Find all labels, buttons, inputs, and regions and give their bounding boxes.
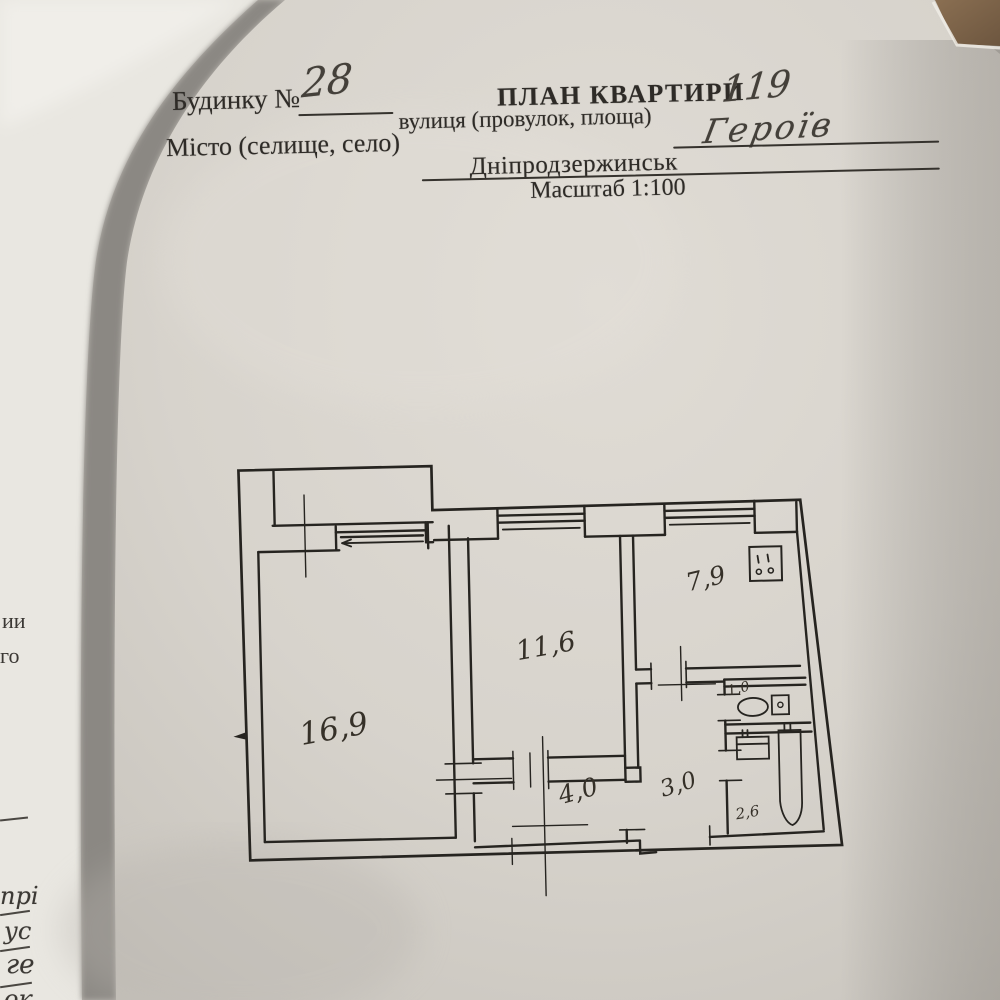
dimension-mark-top-left [279, 494, 333, 577]
balcony-strip [256, 467, 433, 552]
scale-label: Масштаб 1:100 [530, 174, 686, 205]
room-area-label-corridor: 3,0 [657, 767, 700, 803]
hallway-top-wall [473, 749, 626, 790]
bedroom-kitchen-wall [613, 535, 645, 842]
window-bedroom [497, 506, 585, 539]
page-content: Будинку № 28 ПЛАН КВАРТИРИ 119 вулиця (п… [0, 0, 1000, 1000]
room-area-label-kitchen: 7,9 [683, 560, 728, 597]
room-area-label-hallway: 4,0 [554, 772, 601, 811]
window-kitchen [664, 501, 755, 535]
wall-arrow-mark [233, 732, 245, 739]
building-number-underline [298, 112, 393, 116]
apartment-number-handwritten: 119 [720, 63, 793, 111]
building-number-handwritten: 28 [300, 55, 354, 107]
bathtub-icon [778, 724, 802, 825]
building-label: Будинку № [172, 83, 301, 117]
floor-plan-drawing: 16,9 11,6 7,9 4,0 3,0 1,0 2,6 [223, 433, 858, 907]
toilet-icon [738, 695, 789, 716]
window-living-room [336, 522, 429, 550]
room-area-label-living-room: 16,9 [297, 705, 371, 753]
street-label: вулиця (провулок, площа) [398, 103, 652, 135]
room-area-label-wc: 1,0 [726, 679, 751, 700]
document-photo: ии го прі ус ге ок Будинку № 28 ПЛАН КВА… [0, 0, 1000, 1000]
room-area-label-bathroom: 2,6 [733, 802, 761, 824]
dimension-mark-hall-door [436, 778, 511, 780]
bottom-inner-wall [475, 823, 825, 865]
city-label: Місто (селище, село) [166, 128, 401, 163]
dimension-mark-hallway [511, 736, 590, 897]
room-area-label-bedroom: 11,6 [514, 626, 579, 667]
stove-icon [749, 546, 782, 581]
living-room-walls [258, 525, 483, 846]
